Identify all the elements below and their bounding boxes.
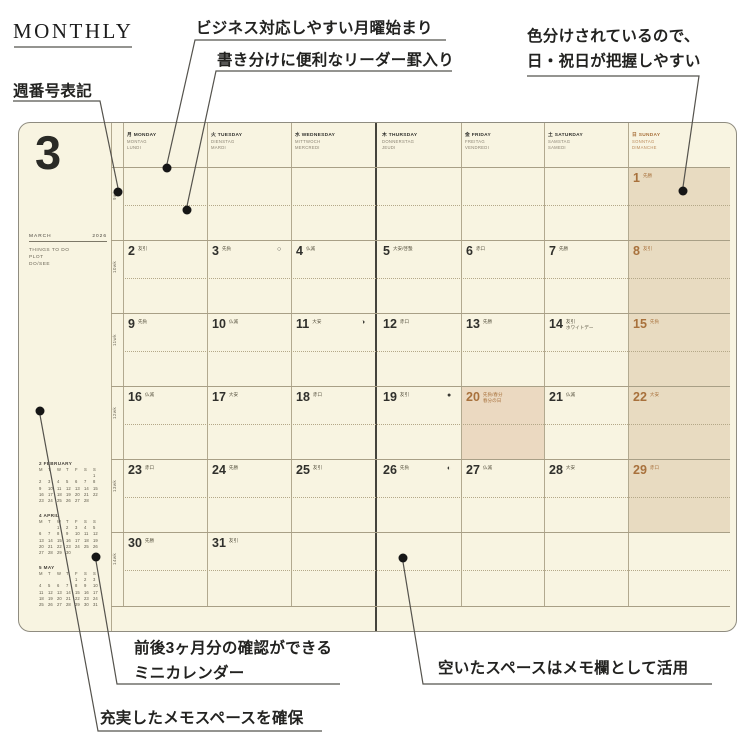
mini-calendar-title: 2 FEBRUARY	[39, 461, 105, 466]
day-cell: 16仏滅	[128, 391, 154, 404]
mini-calendar-date: 25	[39, 602, 48, 608]
date-labels: 友引	[313, 465, 322, 471]
month-year-row: MARCH 2026	[29, 234, 107, 242]
mini-calendar-title: 5 MAY	[39, 565, 105, 570]
day-cell: 13先勝	[466, 318, 492, 331]
moon-phase-icon: ◑	[361, 319, 365, 326]
date-labels: 仏滅	[229, 319, 238, 325]
date-number: 9	[128, 318, 135, 331]
mini-calendar-grid: MTWTFSS123456789101112131415161718192021…	[39, 571, 105, 608]
rokuyo-label: 大安	[229, 392, 238, 398]
rokuyo-label: 赤口	[313, 392, 322, 398]
date-labels: 仏滅	[306, 246, 315, 252]
grid-line	[111, 313, 730, 314]
date-number: 3	[212, 245, 219, 258]
day-cell: 20先負/春分春分の日	[466, 391, 503, 404]
day-cell: 4仏滅	[296, 245, 315, 258]
grid-line	[207, 123, 208, 606]
date-number: 28	[549, 464, 563, 477]
mini-calendar-date: 30	[84, 602, 93, 608]
mini-calendar: 5 MAYMTWTFSS1234567891011121314151617181…	[39, 565, 105, 608]
leader-rule-line	[123, 205, 730, 206]
rokuyo-label: 先勝	[145, 538, 154, 544]
week-number-label: 13wk	[112, 462, 117, 492]
mini-calendar-title: 4 APRIL	[39, 513, 105, 518]
day-cell: 9先負	[128, 318, 147, 331]
product-image: MONTHLY 週番号表記 ビジネス対応しやすい月曜始まり 書き分けに便利なリー…	[0, 0, 750, 750]
date-number: 23	[128, 464, 142, 477]
rokuyo-label: 友引	[313, 465, 322, 471]
grid-line	[111, 386, 730, 387]
mini-calendar-date	[93, 498, 102, 504]
rokuyo-label: 赤口	[476, 246, 485, 252]
mini-calendar-date: 27	[75, 498, 84, 504]
annotation-memo-space: 充実したメモスペースを確保	[100, 706, 304, 731]
month-name: MARCH	[29, 234, 52, 239]
leader-rule-line	[123, 497, 730, 498]
date-labels: 赤口	[400, 319, 409, 325]
date-number: 6	[466, 245, 473, 258]
date-labels: 先勝	[643, 173, 652, 179]
todo-block: THINGS TO DO PLOT DO/SEE	[29, 247, 69, 268]
year-label: 2026	[92, 234, 107, 239]
date-labels: 大安	[650, 392, 659, 398]
rokuyo-label: 赤口	[400, 319, 409, 325]
date-number: 16	[128, 391, 142, 404]
mini-calendar: 2 FEBRUARYMTWTFSS12345678910111213141516…	[39, 461, 105, 504]
date-labels: 先負	[138, 319, 147, 325]
date-labels: 赤口	[476, 246, 485, 252]
day-cell: 26先負	[383, 464, 409, 477]
day-cell: 5大安/啓蟄	[383, 245, 413, 258]
grid-line	[628, 123, 629, 606]
date-number: 4	[296, 245, 303, 258]
date-labels: 仏滅	[145, 392, 154, 398]
day-header: 火 TUESDAYDIENSTAGMARDI	[211, 133, 289, 150]
date-labels: 大安/啓蟄	[393, 246, 413, 252]
day-cell: 21仏滅	[549, 391, 575, 404]
day-cell: 19友引	[383, 391, 409, 404]
annotation-week-number: 週番号表記	[13, 79, 92, 104]
mini-calendar-date: 25	[57, 498, 66, 504]
day-cell: 15先負	[633, 318, 659, 331]
day-header: 水 WEDNESDAYMITTWOCHMERCREDI	[295, 133, 373, 150]
rokuyo-label: 大安	[650, 392, 659, 398]
planner-spread: 3 MARCH 2026 THINGS TO DO PLOT DO/SEE 月 …	[18, 122, 737, 632]
date-number: 25	[296, 464, 310, 477]
rokuyo-label: 仏滅	[145, 392, 154, 398]
grid-line	[111, 532, 730, 533]
rokuyo-label: 大安/啓蟄	[393, 246, 413, 252]
mini-calendar-date	[75, 550, 84, 556]
day-cell: 3先負	[212, 245, 231, 258]
date-number: 19	[383, 391, 397, 404]
rokuyo-label: 大安	[566, 465, 575, 471]
grid-line	[291, 123, 292, 606]
mini-calendar-grid: MTWTFSS123456789101112131415161718192021…	[39, 519, 105, 556]
mini-calendar-date: 27	[57, 602, 66, 608]
date-labels: 友引	[400, 392, 409, 398]
page-title: MONTHLY	[13, 19, 133, 44]
day-cell: 23赤口	[128, 464, 154, 477]
date-labels: 先勝	[229, 465, 238, 471]
date-labels: 赤口	[650, 465, 659, 471]
rokuyo-label: 先負	[400, 465, 409, 471]
day-cell: 30先勝	[128, 537, 154, 550]
leader-rule-line	[123, 351, 730, 352]
date-number: 13	[466, 318, 480, 331]
week-number-label: 11wk	[112, 316, 117, 346]
annotation-monday-start: ビジネス対応しやすい月曜始まり	[196, 16, 433, 41]
mini-calendar-date: 31	[93, 602, 102, 608]
todo-line: PLOT	[29, 254, 69, 261]
mini-calendar-date: 24	[48, 498, 57, 504]
annotation-leader-rule: 書き分けに便利なリーダー罫入り	[217, 48, 454, 73]
mini-calendar-date: 30	[66, 550, 75, 556]
grid-line	[544, 123, 545, 606]
date-labels: 先負	[400, 465, 409, 471]
week-number-label: 9wk	[112, 170, 117, 200]
date-labels: 赤口	[313, 392, 322, 398]
mini-calendar-date: 27	[39, 550, 48, 556]
leader-rule-line	[123, 424, 730, 425]
todo-line: THINGS TO DO	[29, 247, 69, 254]
date-labels: 先勝	[559, 246, 568, 252]
day-cell: 27仏滅	[466, 464, 492, 477]
date-labels: 先負/春分春分の日	[483, 392, 503, 403]
rokuyo-label: 仏滅	[229, 319, 238, 325]
sunday-column-shade	[628, 167, 730, 532]
day-cell: 17大安	[212, 391, 238, 404]
day-cell: 29赤口	[633, 464, 659, 477]
day-cell: 22大安	[633, 391, 659, 404]
date-number: 21	[549, 391, 563, 404]
moon-phase-icon: ○	[277, 246, 281, 253]
leader-rule-line	[123, 278, 730, 279]
mini-calendar-date: 23	[39, 498, 48, 504]
day-cell: 14友引ホワイトデー	[549, 318, 593, 331]
annotation-empty-space: 空いたスペースはメモ欄として活用	[438, 656, 688, 681]
day-header-sublabel: JEUDI	[382, 145, 459, 150]
event-label: ホワイトデー	[566, 325, 594, 331]
moon-phase-icon: ●	[447, 392, 451, 399]
annotation-mini-calendar-line2: ミニカレンダー	[134, 661, 332, 686]
date-number: 10	[212, 318, 226, 331]
day-cell: 24先勝	[212, 464, 238, 477]
grid-line	[461, 123, 462, 606]
day-header-sublabel: SAMEDI	[548, 145, 626, 150]
date-number: 20	[466, 391, 480, 404]
day-cell: 11大安	[296, 318, 321, 331]
mini-calendar-date	[93, 550, 102, 556]
date-number: 15	[633, 318, 647, 331]
annotation-mini-calendar: 前後3ヶ月分の確認ができる ミニカレンダー	[134, 636, 332, 686]
date-number: 8	[633, 245, 640, 258]
date-number: 11	[296, 318, 309, 331]
day-cell: 31友引	[212, 537, 238, 550]
todo-line: DO/SEE	[29, 261, 69, 268]
date-number: 12	[383, 318, 397, 331]
date-number: 22	[633, 391, 647, 404]
day-cell: 28大安	[549, 464, 575, 477]
date-number: 27	[466, 464, 480, 477]
rokuyo-label: 先勝	[229, 465, 238, 471]
date-labels: 友引ホワイトデー	[566, 319, 594, 330]
gutter-line	[375, 123, 377, 631]
rokuyo-label: 友引	[400, 392, 409, 398]
mini-calendar-date: 29	[75, 602, 84, 608]
date-number: 24	[212, 464, 226, 477]
day-cell: 25友引	[296, 464, 322, 477]
grid-line	[123, 123, 124, 606]
day-header: 日 SUNDAYSONNTAGDIMANCHE	[632, 133, 728, 150]
date-labels: 先勝	[483, 319, 492, 325]
rokuyo-label: 先負	[650, 319, 659, 325]
day-header: 月 MONDAYMONTAGLUNDI	[127, 133, 205, 150]
mini-calendar-grid: MTWTFSS123456789101112131415161718192021…	[39, 467, 105, 504]
annotation-color-coded-line1: 色分けされているので、	[527, 24, 701, 49]
mini-calendar-date: 29	[57, 550, 66, 556]
rokuyo-label: 友引	[138, 246, 147, 252]
grid-line	[111, 240, 730, 241]
mini-calendar-date	[84, 550, 93, 556]
day-cell: 18赤口	[296, 391, 322, 404]
date-labels: 仏滅	[566, 392, 575, 398]
date-number: 1	[633, 172, 640, 185]
date-number: 30	[128, 537, 142, 550]
date-labels: 先勝	[145, 538, 154, 544]
grid-line	[111, 459, 730, 460]
day-header: 土 SATURDAYSAMSTAGSAMEDI	[548, 133, 626, 150]
date-number: 5	[383, 245, 390, 258]
leader-rule-line	[123, 570, 730, 571]
date-labels: 友引	[138, 246, 147, 252]
annotation-color-coded-line2: 日・祝日が把握しやすい	[527, 49, 701, 74]
event-label: 春分の日	[483, 398, 503, 404]
rokuyo-label: 赤口	[145, 465, 154, 471]
day-cell: 8友引	[633, 245, 652, 258]
date-number: 18	[296, 391, 310, 404]
day-header-sublabel: MARDI	[211, 145, 289, 150]
date-labels: 大安	[312, 319, 321, 325]
date-number: 2	[128, 245, 135, 258]
date-labels: 先負	[222, 246, 231, 252]
day-header: 木 THURSDAYDONNERSTAGJEUDI	[382, 133, 459, 150]
date-labels: 大安	[566, 465, 575, 471]
day-cell: 12赤口	[383, 318, 409, 331]
rokuyo-label: 大安	[312, 319, 321, 325]
week-number-label: 12wk	[112, 389, 117, 419]
date-number: 17	[212, 391, 226, 404]
day-cell: 7先勝	[549, 245, 568, 258]
day-header: 金 FRIDAYFREITAGVENDREDI	[465, 133, 542, 150]
rokuyo-label: 先負	[138, 319, 147, 325]
day-header-sublabel: VENDREDI	[465, 145, 542, 150]
date-labels: 先負	[650, 319, 659, 325]
date-number: 31	[212, 537, 226, 550]
date-labels: 友引	[229, 538, 238, 544]
date-number: 29	[633, 464, 647, 477]
rokuyo-label: 仏滅	[566, 392, 575, 398]
rokuyo-label: 赤口	[650, 465, 659, 471]
day-cell: 6赤口	[466, 245, 485, 258]
rokuyo-label: 友引	[643, 246, 652, 252]
day-header-sublabel: LUNDI	[127, 145, 205, 150]
day-cell: 1先勝	[633, 172, 652, 185]
mini-calendar-date: 28	[84, 498, 93, 504]
annotation-mini-calendar-line1: 前後3ヶ月分の確認ができる	[134, 636, 332, 661]
date-labels: 大安	[229, 392, 238, 398]
day-header-sublabel: MERCREDI	[295, 145, 373, 150]
date-labels: 友引	[643, 246, 652, 252]
week-number-label: 10wk	[112, 243, 117, 273]
rokuyo-label: 仏滅	[483, 465, 492, 471]
mini-calendar-date: 28	[48, 550, 57, 556]
date-number: 26	[383, 464, 397, 477]
day-cell: 10仏滅	[212, 318, 238, 331]
moon-phase-icon: ◐	[447, 465, 451, 472]
date-number: 7	[549, 245, 556, 258]
rokuyo-label: 仏滅	[306, 246, 315, 252]
grid-line	[111, 606, 730, 607]
mini-calendar: 4 APRILMTWTFSS12345678910111213141516171…	[39, 513, 105, 556]
day-header-sublabel: DIMANCHE	[632, 145, 728, 150]
day-cell: 2友引	[128, 245, 147, 258]
rokuyo-label: 先勝	[643, 173, 652, 179]
mini-calendar-date: 26	[66, 498, 75, 504]
mini-calendar-date: 26	[48, 602, 57, 608]
rokuyo-label: 先勝	[559, 246, 568, 252]
date-number: 14	[549, 318, 563, 331]
rokuyo-label: 先負	[222, 246, 231, 252]
month-number: 3	[35, 125, 61, 180]
week-number-label: 14wk	[112, 535, 117, 565]
date-labels: 赤口	[145, 465, 154, 471]
grid-line	[111, 167, 730, 168]
mini-calendar-date: 28	[66, 602, 75, 608]
date-labels: 仏滅	[483, 465, 492, 471]
annotation-color-coded: 色分けされているので、 日・祝日が把握しやすい	[527, 24, 701, 74]
rokuyo-label: 先勝	[483, 319, 492, 325]
rokuyo-label: 友引	[229, 538, 238, 544]
